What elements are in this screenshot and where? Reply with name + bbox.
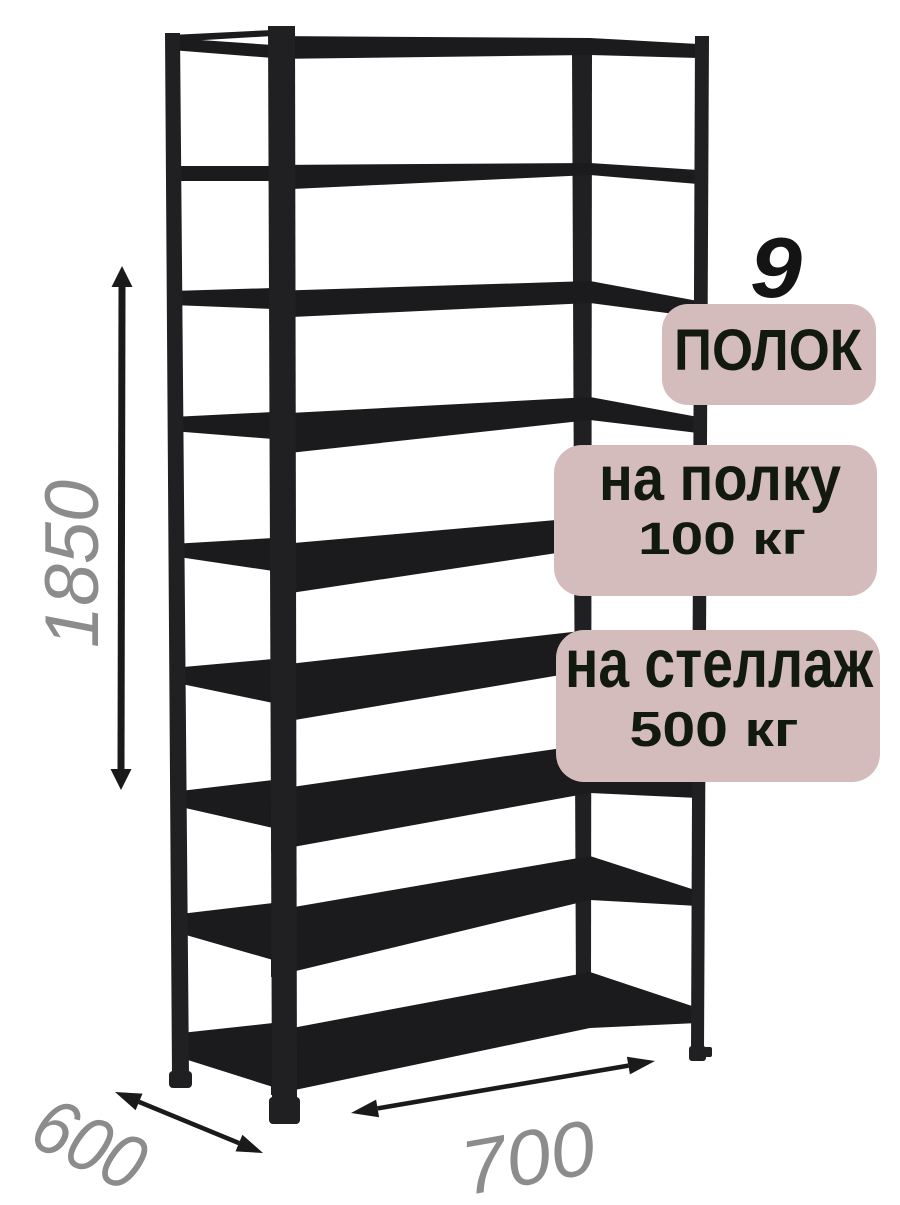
svg-text:на стеллаж: на стеллаж <box>565 625 874 702</box>
svg-text:ПОЛОК: ПОЛОК <box>674 318 863 383</box>
svg-text:500 кг: 500 кг <box>630 703 799 757</box>
svg-text:100 кг: 100 кг <box>638 513 806 564</box>
svg-text:на полку: на полку <box>599 444 841 514</box>
svg-text:9: 9 <box>750 221 802 316</box>
svg-text:1850: 1850 <box>30 480 115 648</box>
